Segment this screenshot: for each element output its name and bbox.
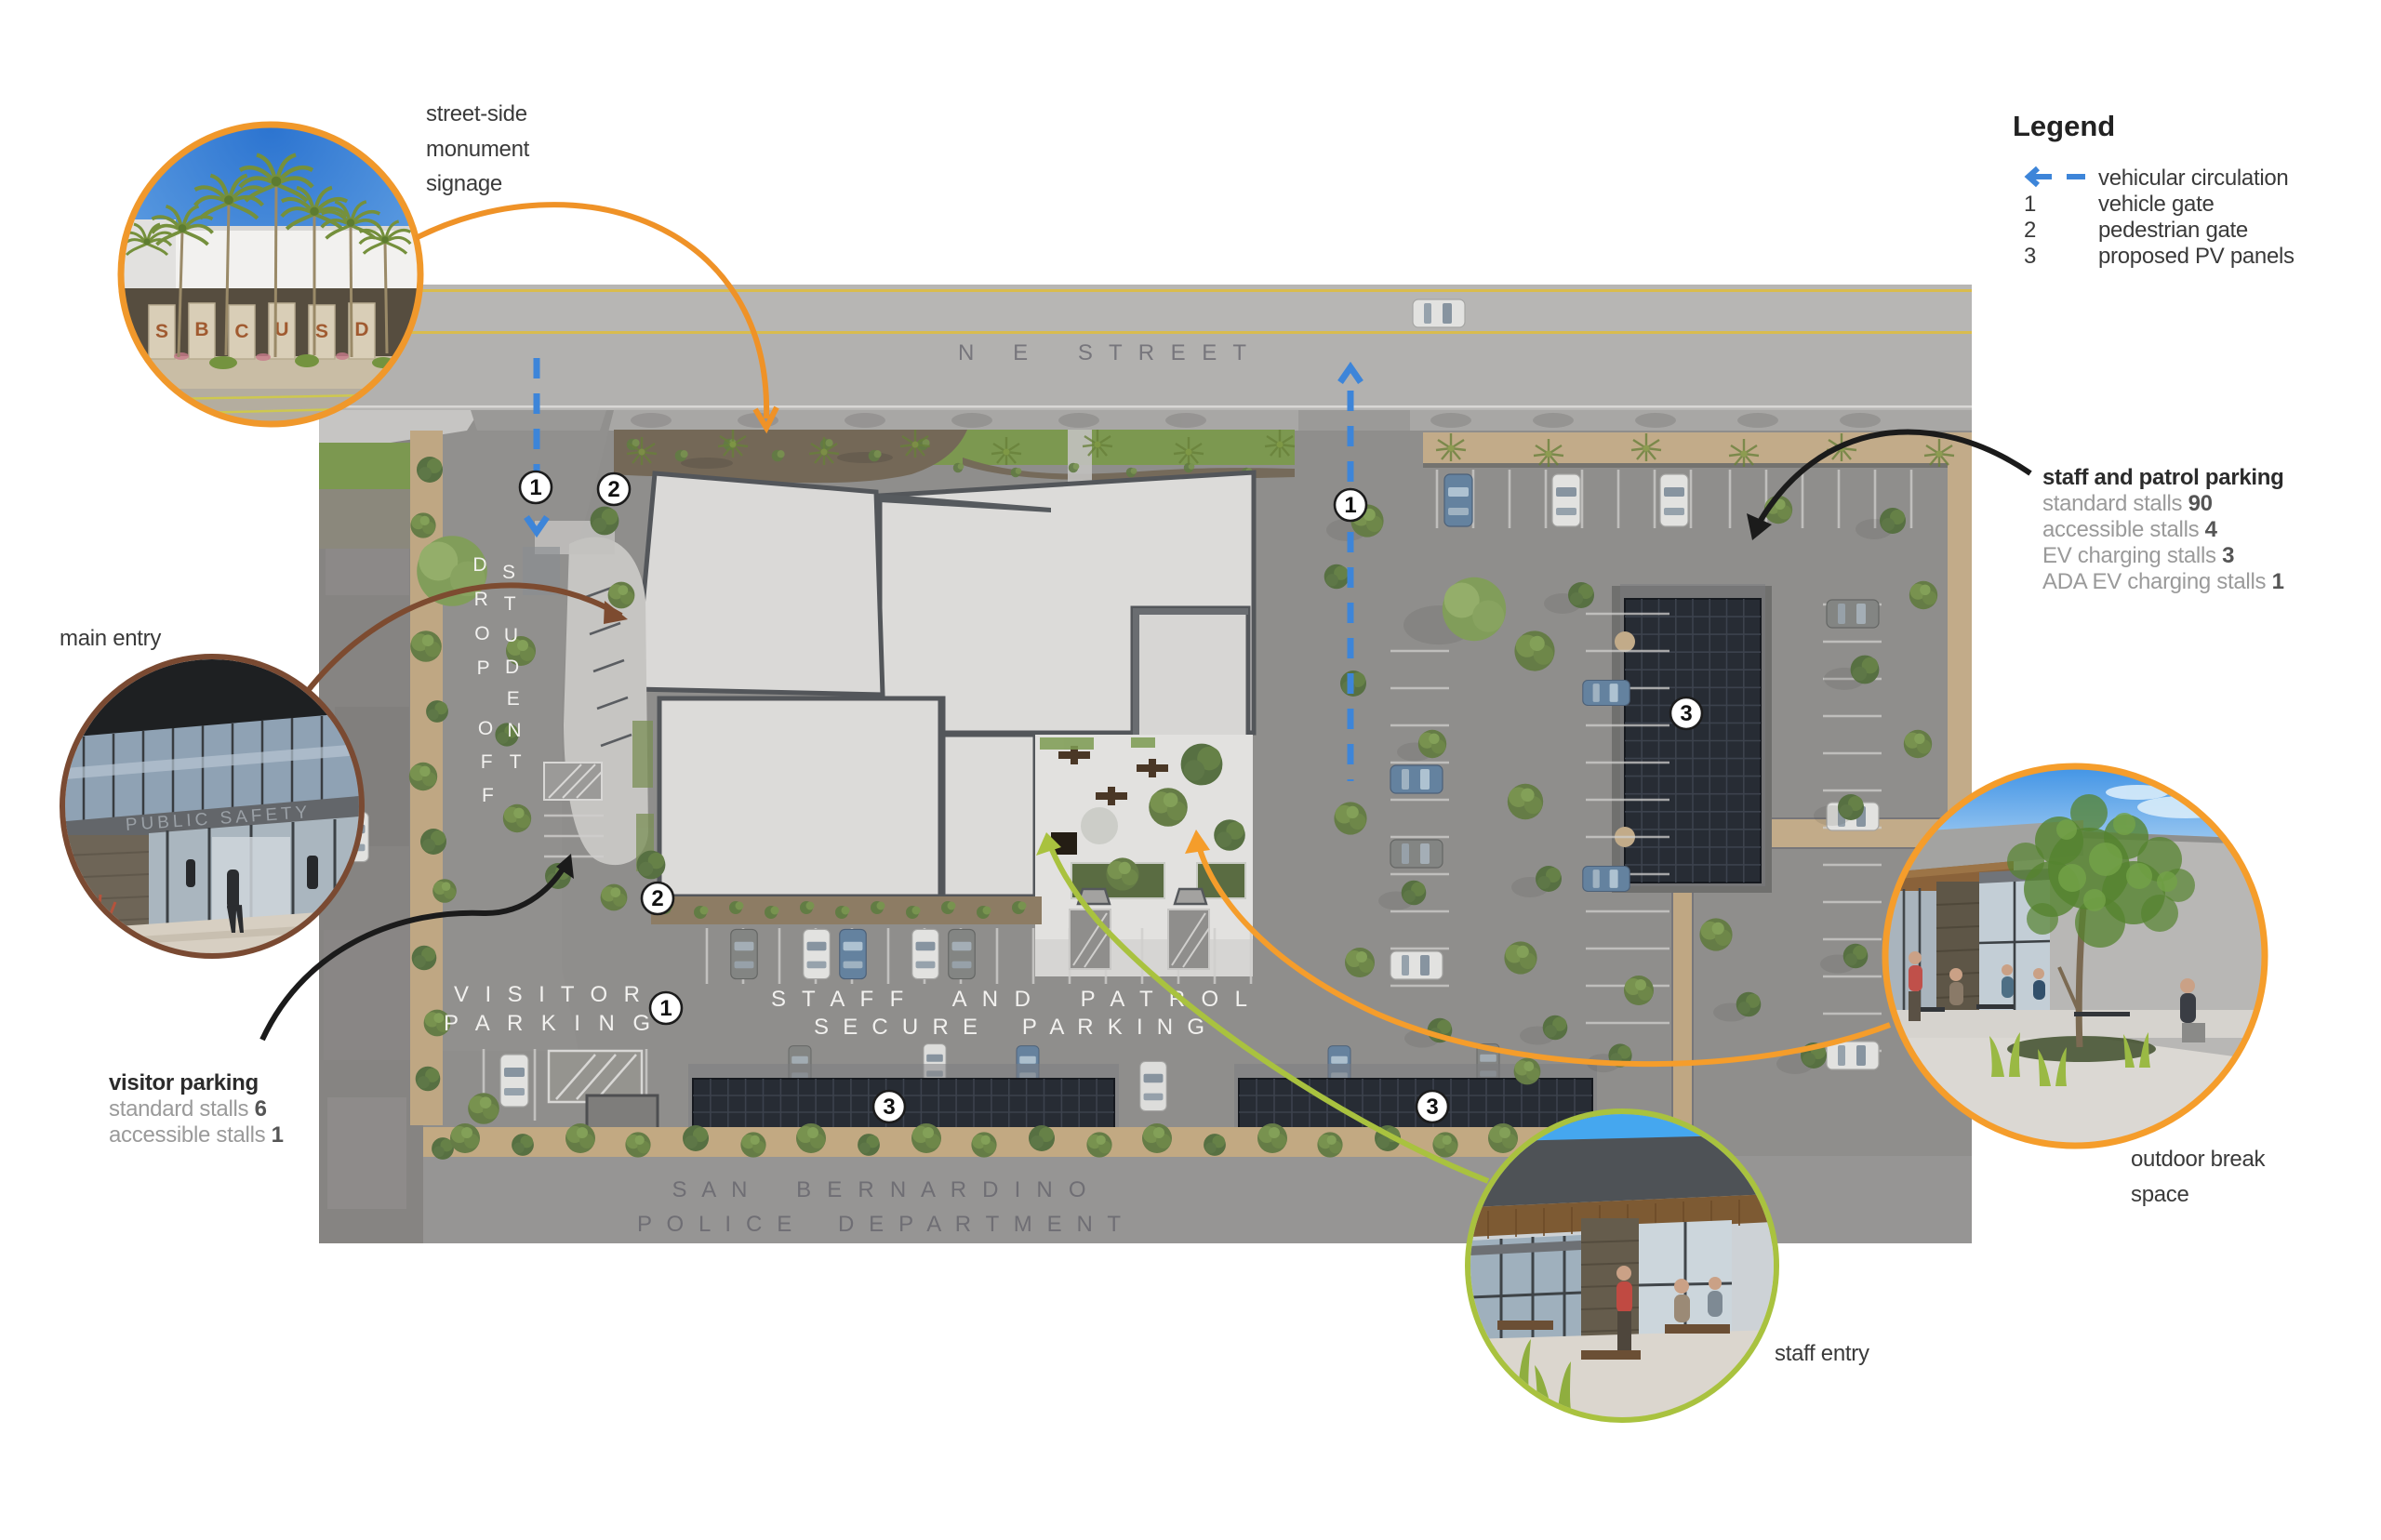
svg-text:accessible stalls 1: accessible stalls 1 [109, 1122, 284, 1148]
svg-text:3: 3 [883, 1095, 895, 1120]
svg-text:B: B [194, 319, 208, 340]
svg-text:visitor parking: visitor parking [109, 1070, 259, 1095]
svg-text:EV charging stalls 3: EV charging stalls 3 [2042, 543, 2234, 568]
svg-text:vehicular circulation: vehicular circulation [2098, 166, 2288, 191]
svg-text:standard stalls 6: standard stalls 6 [109, 1096, 267, 1122]
svg-text:street-side: street-side [426, 101, 527, 126]
svg-text:monument: monument [426, 137, 530, 162]
svg-text:1: 1 [1344, 493, 1356, 518]
svg-text:T: T [504, 593, 516, 615]
svg-text:standard stalls 90: standard stalls 90 [2042, 491, 2213, 516]
svg-text:Legend: Legend [2013, 110, 2115, 142]
svg-text:N E S T R E E T: N E S T R E E T [958, 340, 1246, 365]
svg-text:D: D [472, 554, 486, 576]
svg-text:S T A F F A N D P A T R: S T A F F A N D P A T R O L [771, 987, 1247, 1012]
svg-text:1: 1 [2024, 192, 2036, 217]
svg-text:S: S [315, 321, 328, 342]
svg-text:U: U [504, 625, 518, 646]
svg-text:C: C [234, 321, 248, 342]
svg-text:proposed PV panels: proposed PV panels [2098, 244, 2295, 269]
svg-text:3: 3 [1680, 701, 1692, 726]
svg-text:O: O [478, 718, 493, 739]
svg-text:ADA EV charging stalls 1: ADA EV charging stalls 1 [2042, 569, 2284, 594]
svg-text:P O L I C E D E P A R T M E: P O L I C E D E P A R T M E N T [637, 1212, 1121, 1237]
svg-text:signage: signage [426, 171, 502, 196]
svg-text:N: N [507, 720, 521, 741]
svg-text:S: S [502, 562, 515, 583]
svg-text:D: D [505, 657, 519, 678]
svg-text:P: P [477, 657, 490, 679]
svg-text:1: 1 [659, 996, 672, 1021]
svg-text:D: D [354, 319, 368, 340]
svg-text:T: T [510, 751, 522, 773]
svg-text:R: R [474, 589, 488, 610]
svg-text:F: F [481, 751, 493, 773]
svg-text:outdoor break: outdoor break [2131, 1147, 2267, 1172]
svg-text:staff and patrol parking: staff and patrol parking [2042, 465, 2284, 490]
svg-text:2: 2 [2024, 218, 2036, 243]
svg-text:3: 3 [1426, 1095, 1438, 1120]
svg-text:space: space [2131, 1182, 2189, 1207]
svg-text:2: 2 [607, 477, 619, 502]
svg-text:staff entry: staff entry [1775, 1341, 1869, 1366]
svg-text:pedestrian gate: pedestrian gate [2098, 218, 2248, 243]
svg-text:F: F [482, 785, 494, 806]
svg-text:O: O [474, 623, 489, 644]
svg-text:3: 3 [2024, 244, 2036, 269]
svg-text:2: 2 [651, 886, 663, 911]
svg-text:main entry: main entry [60, 626, 161, 651]
svg-text:vehicle gate: vehicle gate [2098, 192, 2215, 217]
svg-text:E: E [507, 688, 520, 710]
svg-text:S: S [155, 321, 168, 342]
svg-text:1: 1 [529, 475, 541, 500]
svg-text:accessible stalls 4: accessible stalls 4 [2042, 517, 2218, 542]
